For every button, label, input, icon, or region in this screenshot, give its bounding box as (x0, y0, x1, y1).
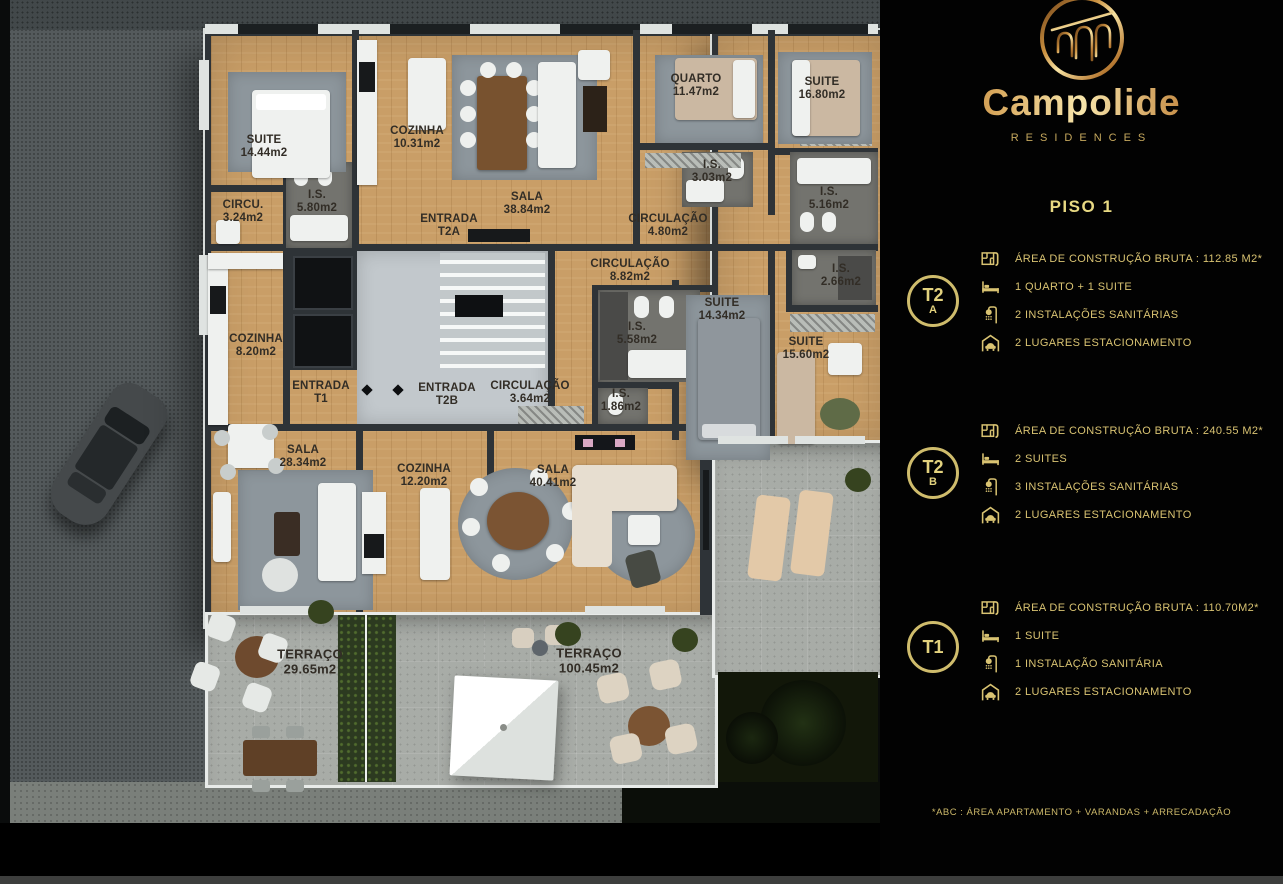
campolide-floorplan-page: SUITE14.44m2 COZINHA10.31m2 CIRCU.3.24m2… (0, 0, 1283, 884)
kitchen-counter (208, 253, 283, 269)
terrace-dining-chairs (252, 726, 270, 738)
spec-row: 2 LUGARES ESTACIONAMENTO (980, 678, 1270, 706)
bed-suite-1434 (698, 318, 760, 440)
daybed-suite-1560 (777, 352, 815, 444)
spec-text: 1 INSTALAÇÃO SANITÁRIA (1015, 658, 1163, 670)
room-label: SUITE15.60m2 (783, 336, 830, 362)
cooktop (364, 534, 384, 558)
brand-tagline: RESIDENCES (880, 132, 1283, 144)
spec-text: ÁREA DE CONSTRUÇÃO BRUTA : 240.55 M2* (1015, 425, 1263, 437)
brand-wordmark: Campolide (880, 82, 1283, 124)
armchair (578, 50, 610, 80)
bathtub (290, 215, 348, 241)
room-label: TERRAÇO29.65m2 (277, 647, 343, 676)
room-label: TERRAÇO100.45m2 (556, 646, 622, 675)
spec-row: 3 INSTALAÇÕES SANITÁRIAS (980, 473, 1270, 501)
unit-badge-t1: T1 (907, 621, 959, 673)
room-label: I.S.3.03m2 (692, 159, 732, 185)
wall (790, 305, 878, 312)
garage-icon (980, 682, 1001, 703)
floorplan-icon (980, 421, 1001, 442)
hedge-planter (338, 615, 396, 782)
room-label: SUITE14.44m2 (241, 134, 288, 160)
bed-icon (980, 277, 1001, 298)
terrace-dining-table (243, 740, 317, 776)
window-bottom-edge (0, 876, 1283, 884)
room-label: SUITE14.34m2 (699, 297, 746, 323)
facade-windows (238, 24, 318, 34)
glass-divider (365, 615, 367, 782)
decor-items (583, 439, 593, 447)
terrace-round-table (235, 636, 279, 678)
kitchen-counter (208, 253, 228, 425)
spec-text: 3 INSTALAÇÕES SANITÁRIAS (1015, 481, 1178, 493)
sofa-sala-2834 (318, 483, 356, 581)
info-panel: Campolide RESIDENCES PISO 1 T2 A ÁREA DE… (880, 0, 1283, 884)
green-rug (820, 398, 860, 430)
kitchen-counter (362, 492, 386, 574)
floorplan-render: SUITE14.44m2 COZINHA10.31m2 CIRCU.3.24m2… (0, 0, 880, 823)
elevator-2 (293, 314, 353, 368)
armchair (262, 558, 298, 592)
garage-icon (980, 505, 1001, 526)
unit-specs-t2a: ÁREA DE CONSTRUÇÃO BRUTA : 112.85 M2* 1 … (980, 245, 1270, 357)
room-label: COZINHA12.20m2 (397, 463, 451, 489)
footnote: *ABC : ÁREA APARTAMENTO + VARANDAS + ARR… (890, 807, 1273, 818)
door-thresholds (240, 606, 320, 614)
room-label: I.S.5.80m2 (297, 189, 337, 215)
spec-text: 2 INSTALAÇÕES SANITÁRIAS (1015, 309, 1178, 321)
bistro-chairs (512, 628, 534, 648)
parasol-pole (500, 724, 507, 731)
unit-specs-t2b: ÁREA DE CONSTRUÇÃO BRUTA : 240.55 M2* 2 … (980, 417, 1270, 529)
spec-text: 2 LUGARES ESTACIONAMENTO (1015, 337, 1192, 349)
cooktop (210, 286, 226, 314)
coffee-table (274, 512, 300, 556)
bistro-table (532, 640, 548, 656)
sink (798, 255, 816, 269)
dining-chairs (214, 430, 230, 446)
room-label: COZINHA10.31m2 (390, 125, 444, 151)
wall (205, 424, 712, 431)
spec-text: ÁREA DE CONSTRUÇÃO BRUTA : 112.85 M2* (1015, 253, 1262, 265)
room-label: I.S.5.58m2 (617, 321, 657, 347)
bed-icon (980, 449, 1001, 470)
room-label: CIRCULAÇÃO4.80m2 (628, 213, 707, 239)
toilets (800, 212, 814, 232)
spec-row: 1 QUARTO + 1 SUITE (980, 273, 1270, 301)
garden-strip-bottom (622, 782, 880, 823)
campolide-logo-icon (1038, 0, 1126, 82)
cooktop (359, 62, 375, 92)
kitchen-island (420, 488, 450, 580)
coffee-table (628, 515, 660, 545)
spec-row: 2 LUGARES ESTACIONAMENTO (980, 329, 1270, 357)
shower-icon (980, 305, 1001, 326)
room-label: SALA40.41m2 (530, 464, 577, 490)
round-dining-table (228, 424, 274, 468)
garage-icon (980, 333, 1001, 354)
closet (518, 406, 584, 424)
spec-row: 2 INSTALAÇÕES SANITÁRIAS (980, 301, 1270, 329)
room-label: CIRCULAÇÃO8.82m2 (590, 258, 669, 284)
room-label: ENTRADAT1 (292, 380, 350, 406)
left-window-1 (199, 60, 209, 130)
stair-opening (455, 295, 503, 317)
wall (548, 251, 555, 341)
plants (845, 468, 871, 492)
round-dining-table (487, 492, 549, 550)
photo-left-edge (0, 0, 10, 823)
spec-row: ÁREA DE CONSTRUÇÃO BRUTA : 112.85 M2* (980, 245, 1270, 273)
sideboard (213, 492, 231, 562)
unit-badge-t2b: T2 B (907, 447, 959, 499)
dining-chairs (460, 80, 476, 96)
toilets (634, 296, 649, 318)
bed-mattress (733, 60, 755, 118)
bed-icon (980, 626, 1001, 647)
badge-main: T1 (922, 638, 943, 656)
room-label: I.S.5.16m2 (809, 186, 849, 212)
spec-row: 2 LUGARES ESTACIONAMENTO (980, 501, 1270, 529)
spec-row: 1 SUITE (980, 622, 1270, 650)
wall (768, 30, 775, 215)
shower-icon (980, 654, 1001, 675)
room-label: CIRCU.3.24m2 (223, 199, 264, 225)
room-label: CIRCULAÇÃO3.64m2 (490, 380, 569, 406)
shower-icon (980, 477, 1001, 498)
room-label: COZINHA8.20m2 (229, 333, 283, 359)
spec-text: 2 LUGARES ESTACIONAMENTO (1015, 686, 1192, 698)
spec-text: ÁREA DE CONSTRUÇÃO BRUTA : 110.70M2* (1015, 602, 1259, 614)
elevator-1 (293, 256, 353, 310)
unit-badge-t2a: T2 A (907, 275, 959, 327)
room-label: QUARTO11.47m2 (671, 73, 722, 99)
room-label: I.S.2.66m2 (821, 263, 861, 289)
spec-text: 1 SUITE (1015, 630, 1059, 642)
spec-text: 1 QUARTO + 1 SUITE (1015, 281, 1132, 293)
wall (205, 185, 285, 192)
tv (703, 470, 709, 550)
bed-pillows (256, 94, 326, 110)
armchair (828, 343, 862, 375)
room-label: ENTRADAT2A (420, 213, 478, 239)
street (0, 0, 205, 782)
console (583, 86, 607, 132)
closet (790, 314, 875, 332)
kitchen-island (408, 58, 446, 130)
dining-table (477, 76, 527, 170)
room-label: SUITE16.80m2 (799, 76, 846, 102)
spec-row: ÁREA DE CONSTRUÇÃO BRUTA : 240.55 M2* (980, 417, 1270, 445)
unit-specs-t1: ÁREA DE CONSTRUÇÃO BRUTA : 110.70M2* 1 S… (980, 594, 1270, 706)
l-sofa-chaise (572, 465, 612, 567)
spec-row: ÁREA DE CONSTRUÇÃO BRUTA : 110.70M2* (980, 594, 1270, 622)
floorplan-icon (980, 249, 1001, 270)
floorplan-icon (980, 598, 1001, 619)
spec-text: 2 SUITES (1015, 453, 1067, 465)
tree-small (726, 712, 778, 764)
badge-main: T2 (922, 458, 943, 476)
room-label: SALA28.34m2 (280, 444, 327, 470)
terrace-coffee-table (628, 706, 670, 746)
badge-main: T2 (922, 286, 943, 304)
spec-row: 1 INSTALAÇÃO SANITÁRIA (980, 650, 1270, 678)
door-thresholds (718, 436, 788, 444)
wall (640, 143, 775, 150)
bathtub (797, 158, 871, 184)
room-label: I.S.1.86m2 (601, 388, 641, 414)
bottom-black-band (0, 823, 880, 884)
room-label: SALA38.84m2 (504, 191, 551, 217)
floor-title: PISO 1 (880, 197, 1283, 217)
badge-sub: A (929, 305, 937, 316)
sofa-sala-3884 (538, 62, 576, 168)
dining-chairs (470, 478, 488, 496)
spec-row: 2 SUITES (980, 445, 1270, 473)
room-label: ENTRADAT2B (418, 382, 476, 408)
badge-sub: B (929, 477, 937, 488)
sidewalk-bottom (0, 782, 622, 823)
spec-text: 2 LUGARES ESTACIONAMENTO (1015, 509, 1192, 521)
